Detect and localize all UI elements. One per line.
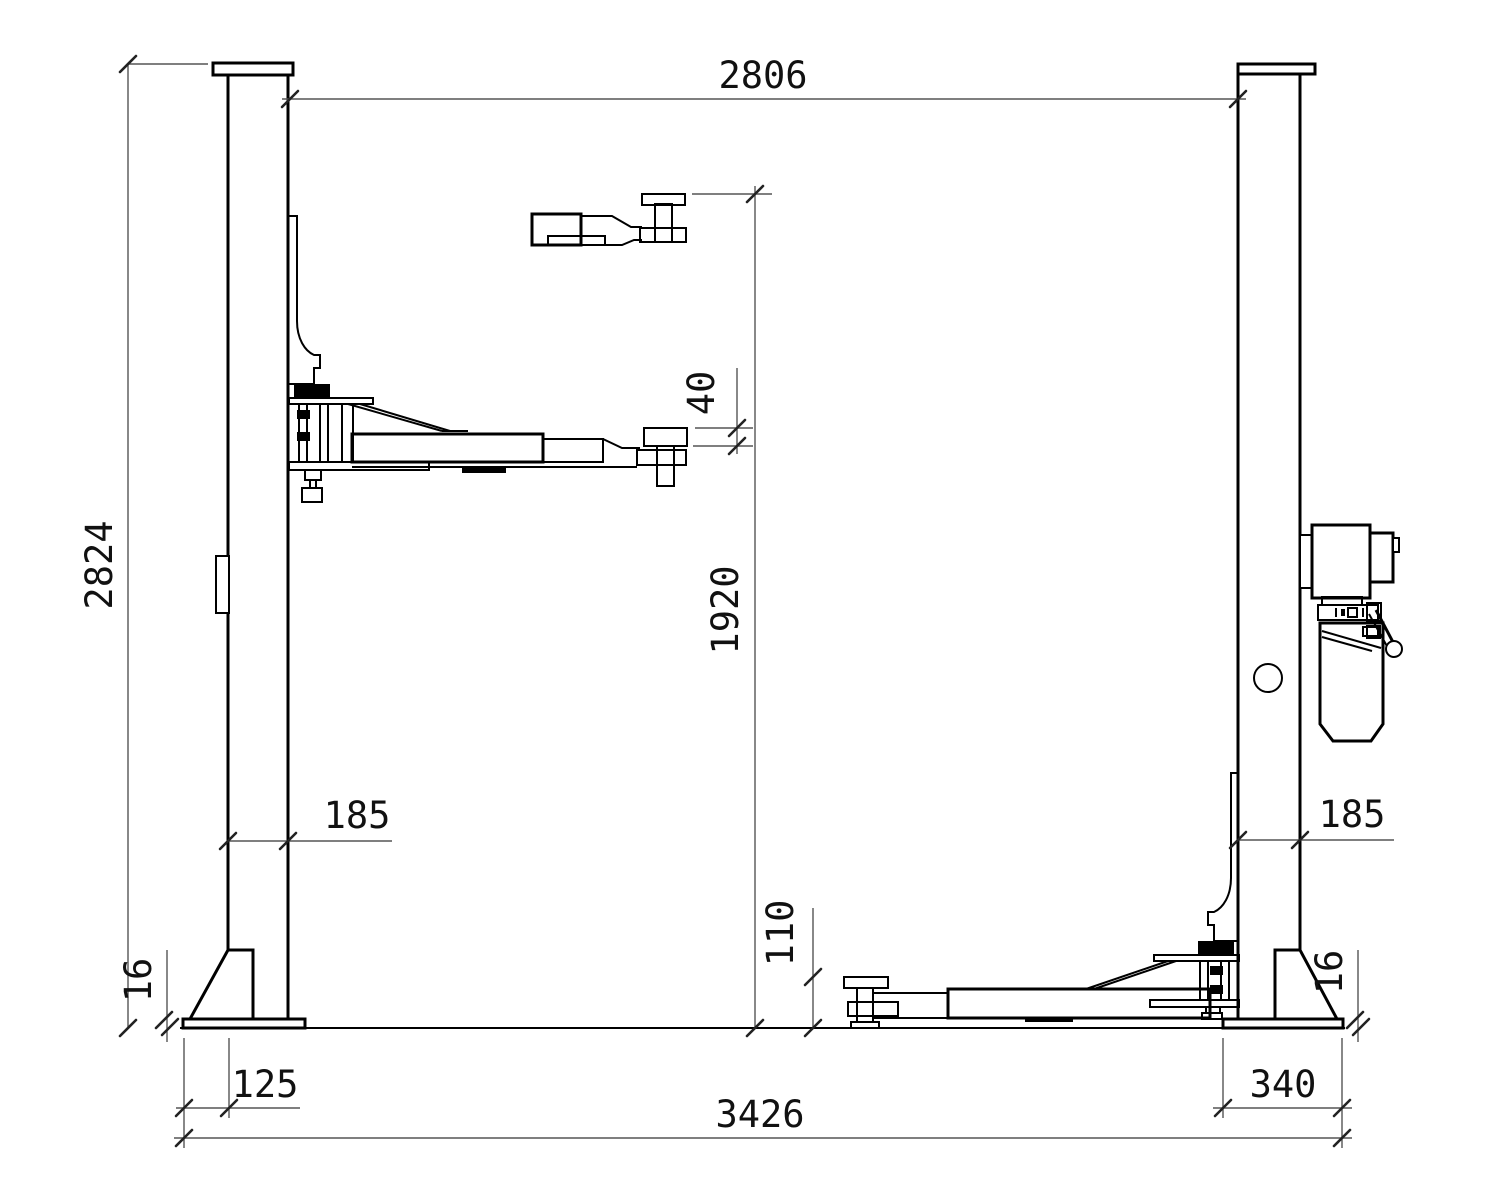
- capacitor-box: [1370, 533, 1393, 582]
- right-arm-mid-tube: [873, 993, 948, 1018]
- left-arm-step: [603, 439, 640, 448]
- valve-detail: [1341, 609, 1345, 616]
- dim-min-pad-height: 110: [759, 900, 821, 1036]
- arm-end-max-height-detail: [532, 194, 686, 245]
- right-post-body: [1238, 74, 1300, 1021]
- left-arm-pivot-block: [294, 384, 330, 398]
- left-post-cap: [213, 63, 293, 75]
- dim-right-plate-overhang: 340: [1213, 1038, 1352, 1148]
- dim-label-pad-screw-travel: 40: [680, 371, 723, 416]
- detail-bottom-profile: [605, 240, 642, 245]
- left-post: [183, 63, 305, 1028]
- dim-label-right-post-width: 185: [1319, 793, 1386, 836]
- right-pad-foot: [851, 1022, 879, 1028]
- left-arm-outer-tube: [352, 434, 543, 462]
- left-arm-pin: [297, 432, 310, 441]
- right-arm-pin: [1210, 985, 1223, 994]
- valve-detail: [1348, 608, 1357, 617]
- detail-outer-tube: [532, 214, 581, 245]
- left-lock-pin-foot: [302, 488, 322, 502]
- right-arm-pivot-block: [1198, 941, 1234, 955]
- left-post-body: [228, 75, 288, 1021]
- right-pad-cap: [844, 977, 888, 988]
- left-pad-cap: [644, 428, 687, 446]
- dim-label-min-pad-height: 110: [759, 900, 802, 967]
- left-gusset: [190, 950, 253, 1019]
- motor-housing: [1312, 525, 1370, 598]
- left-arm-pin: [297, 410, 310, 419]
- detail-pad-sleeve: [640, 228, 686, 242]
- right-arm-outer-tube: [948, 989, 1210, 1018]
- left-arm-mid-tube: [543, 439, 603, 462]
- dim-label-right-plate-overhang: 340: [1250, 1063, 1317, 1106]
- two-post-lift-drawing: 2824 2806 1920 40: [0, 0, 1500, 1200]
- left-post-side-box: [216, 556, 229, 613]
- right-arm-brace: [1086, 961, 1168, 989]
- left-lock-pin-stem: [310, 480, 316, 488]
- dim-label-left-plate-overhang: 125: [232, 1063, 299, 1106]
- right-arm-pin: [1210, 966, 1223, 975]
- left-arm-brace: [348, 404, 442, 431]
- dim-overall-width: 3426: [174, 1093, 1352, 1146]
- dim-label-left-post-width: 185: [324, 794, 391, 837]
- dim-label-max-lift-height: 1920: [704, 565, 747, 654]
- dim-label-overall-height: 2824: [78, 520, 121, 609]
- dim-label-between-posts: 2806: [718, 54, 807, 97]
- left-carriage-raised-arm: [289, 216, 687, 502]
- left-carriage-plate: [289, 216, 320, 384]
- dim-overall-height: 2824: [78, 56, 208, 1036]
- detail-pad-screw: [655, 204, 672, 242]
- dim-pad-screw-travel: 40: [680, 368, 753, 454]
- dim-label-overall-width: 3426: [715, 1093, 804, 1136]
- dim-label-right-plate-thickness: 16: [1308, 950, 1351, 995]
- lever-ball-handle: [1386, 641, 1402, 657]
- dim-left-plate-overhang: 125: [176, 1038, 300, 1148]
- dim-label-left-plate-thickness: 16: [117, 958, 160, 1003]
- left-bracket-rib: [320, 404, 328, 462]
- reservoir-cap: [1363, 627, 1378, 636]
- left-arm-pad-sleeve: [637, 450, 686, 465]
- capacitor-tab: [1393, 538, 1399, 552]
- detail-top-profile: [581, 216, 642, 227]
- hydraulic-power-unit: [1300, 525, 1402, 741]
- right-carriage-lowered-arm: [844, 773, 1239, 1028]
- right-bracket-rib: [1200, 961, 1208, 1000]
- left-arm-brace: [360, 404, 450, 431]
- right-arm-rubbing-pad: [1025, 1017, 1073, 1022]
- left-arm-rubbing-pad: [462, 467, 506, 473]
- technical-drawing-canvas: 2824 2806 1920 40: [0, 0, 1500, 1200]
- left-lock-pin: [305, 470, 321, 480]
- right-bracket-bottom-plate: [1150, 1000, 1239, 1007]
- oil-reservoir: [1320, 623, 1383, 741]
- right-carriage-plate: [1208, 773, 1239, 941]
- right-arm-brace: [1094, 961, 1176, 989]
- dim-between-posts: 2806: [282, 54, 1246, 107]
